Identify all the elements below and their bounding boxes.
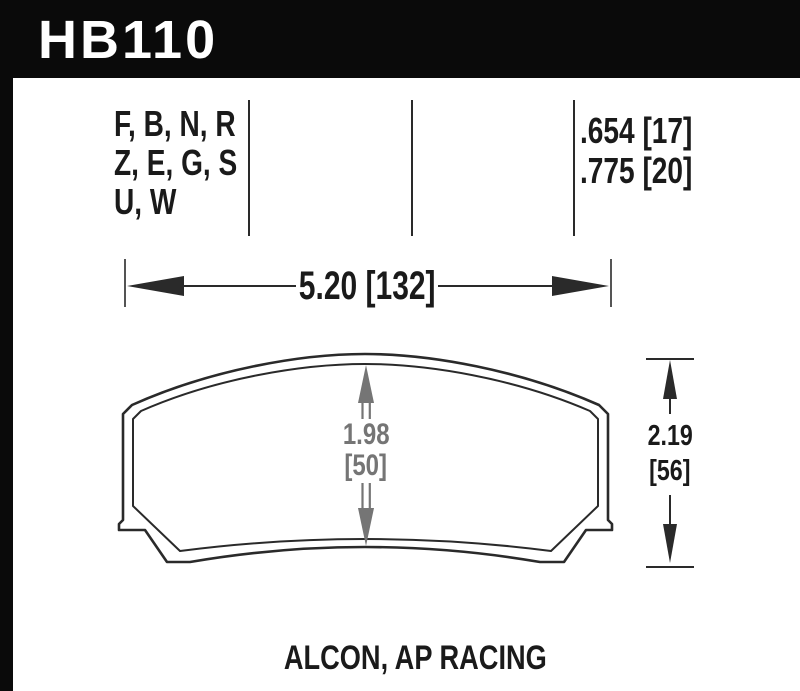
height-inches-text: 2.19 xyxy=(647,419,692,454)
height-arrow-up-icon xyxy=(663,360,677,399)
width-dimension-text: 5.20 [132] xyxy=(299,266,436,306)
height-dimension-label: 2.19 [56] xyxy=(615,419,725,489)
width-dimension-label: 5.20 [132] xyxy=(267,266,467,306)
caliper-applications-text: ALCON, AP RACING xyxy=(284,640,547,676)
width-arrow-right-icon xyxy=(552,276,609,296)
table-dividers xyxy=(249,100,574,236)
pad-height-arrow-up-icon xyxy=(358,365,374,403)
caliper-applications: ALCON, AP RACING xyxy=(240,640,590,676)
brake-pad-spec-sheet: HB110 F, B, N, R Z, E, G, S U, W .654 [1… xyxy=(0,0,800,691)
height-arrow-down-icon xyxy=(663,524,677,563)
diagram-geometry xyxy=(0,0,800,691)
pad-height-arrow-down-icon xyxy=(358,508,374,546)
pad-height-inches-text: 1.98 xyxy=(343,419,390,450)
height-mm-text: [56] xyxy=(649,454,690,489)
pad-height-mm-text: [50] xyxy=(345,450,388,481)
width-arrow-left-icon xyxy=(127,276,184,296)
pad-height-dimension-label: 1.98 [50] xyxy=(306,419,426,481)
